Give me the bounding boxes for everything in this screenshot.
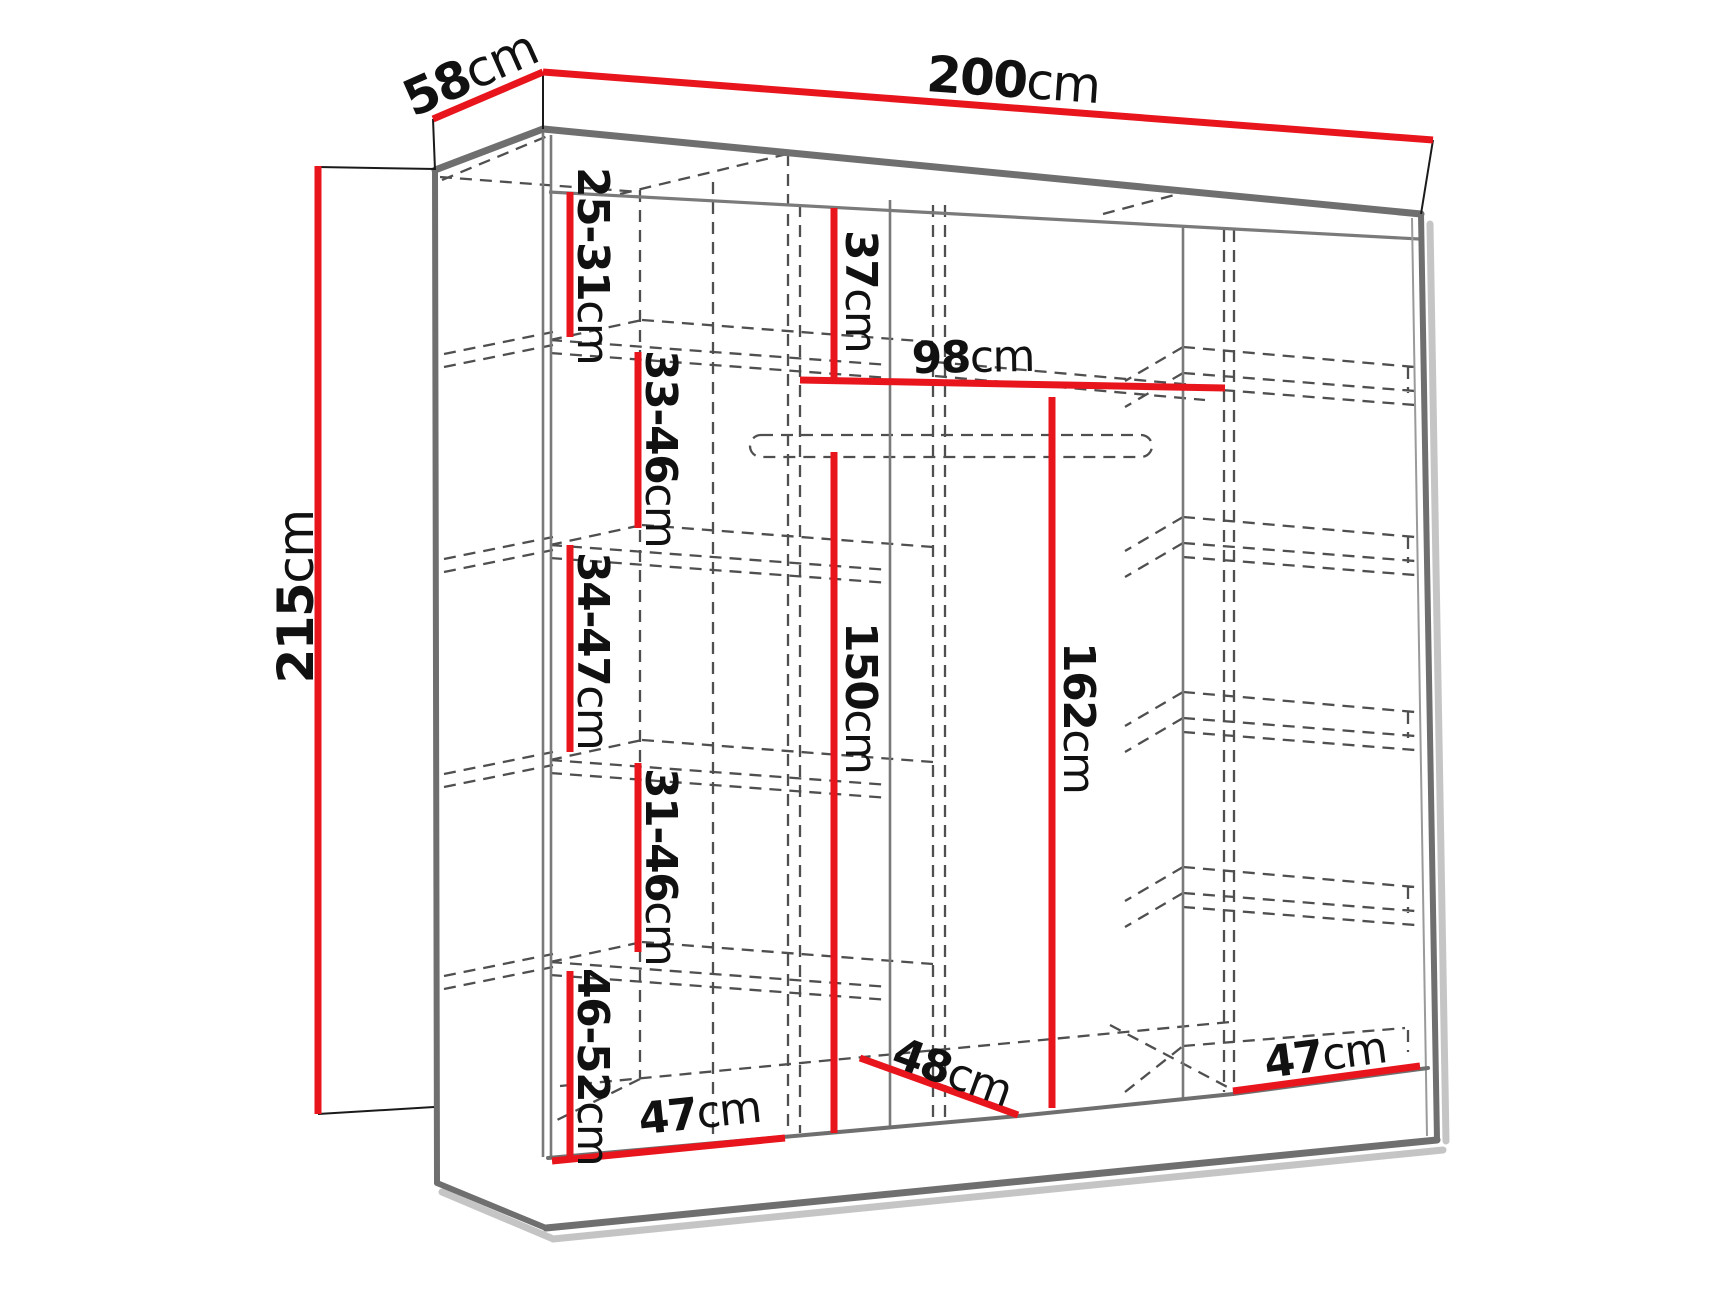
dim-label-height: 215cm [267,510,325,683]
wardrobe-dimension-diagram: 200cm 58cm 215cm 25-31cm 33-46cm 34-47cm… [0,0,1726,1295]
dim-label-width: 200cm [925,45,1102,115]
diagram-canvas: 200cm 58cm 215cm 25-31cm 33-46cm 34-47cm… [0,0,1726,1295]
height-extension-bottom [318,1107,434,1114]
dim-label-gap-34-47: 34-47cm [567,552,618,749]
dim-label-hang-150: 150cm [835,622,886,773]
left-front-edge [435,170,437,1183]
dim-label-top-37: 37cm [835,230,886,352]
dim-label-middle-98: 98cm [911,331,1034,384]
dim-label-gap-31-46: 31-46cm [635,768,686,965]
dim-label-gap-25-31: 25-31cm [567,167,618,364]
dim-label-gap-46-52: 46-52cm [567,968,618,1165]
height-extension-top [318,167,436,169]
dim-label-hang-162: 162cm [1053,642,1104,793]
dim-label-gap-33-46: 33-46cm [635,350,686,547]
